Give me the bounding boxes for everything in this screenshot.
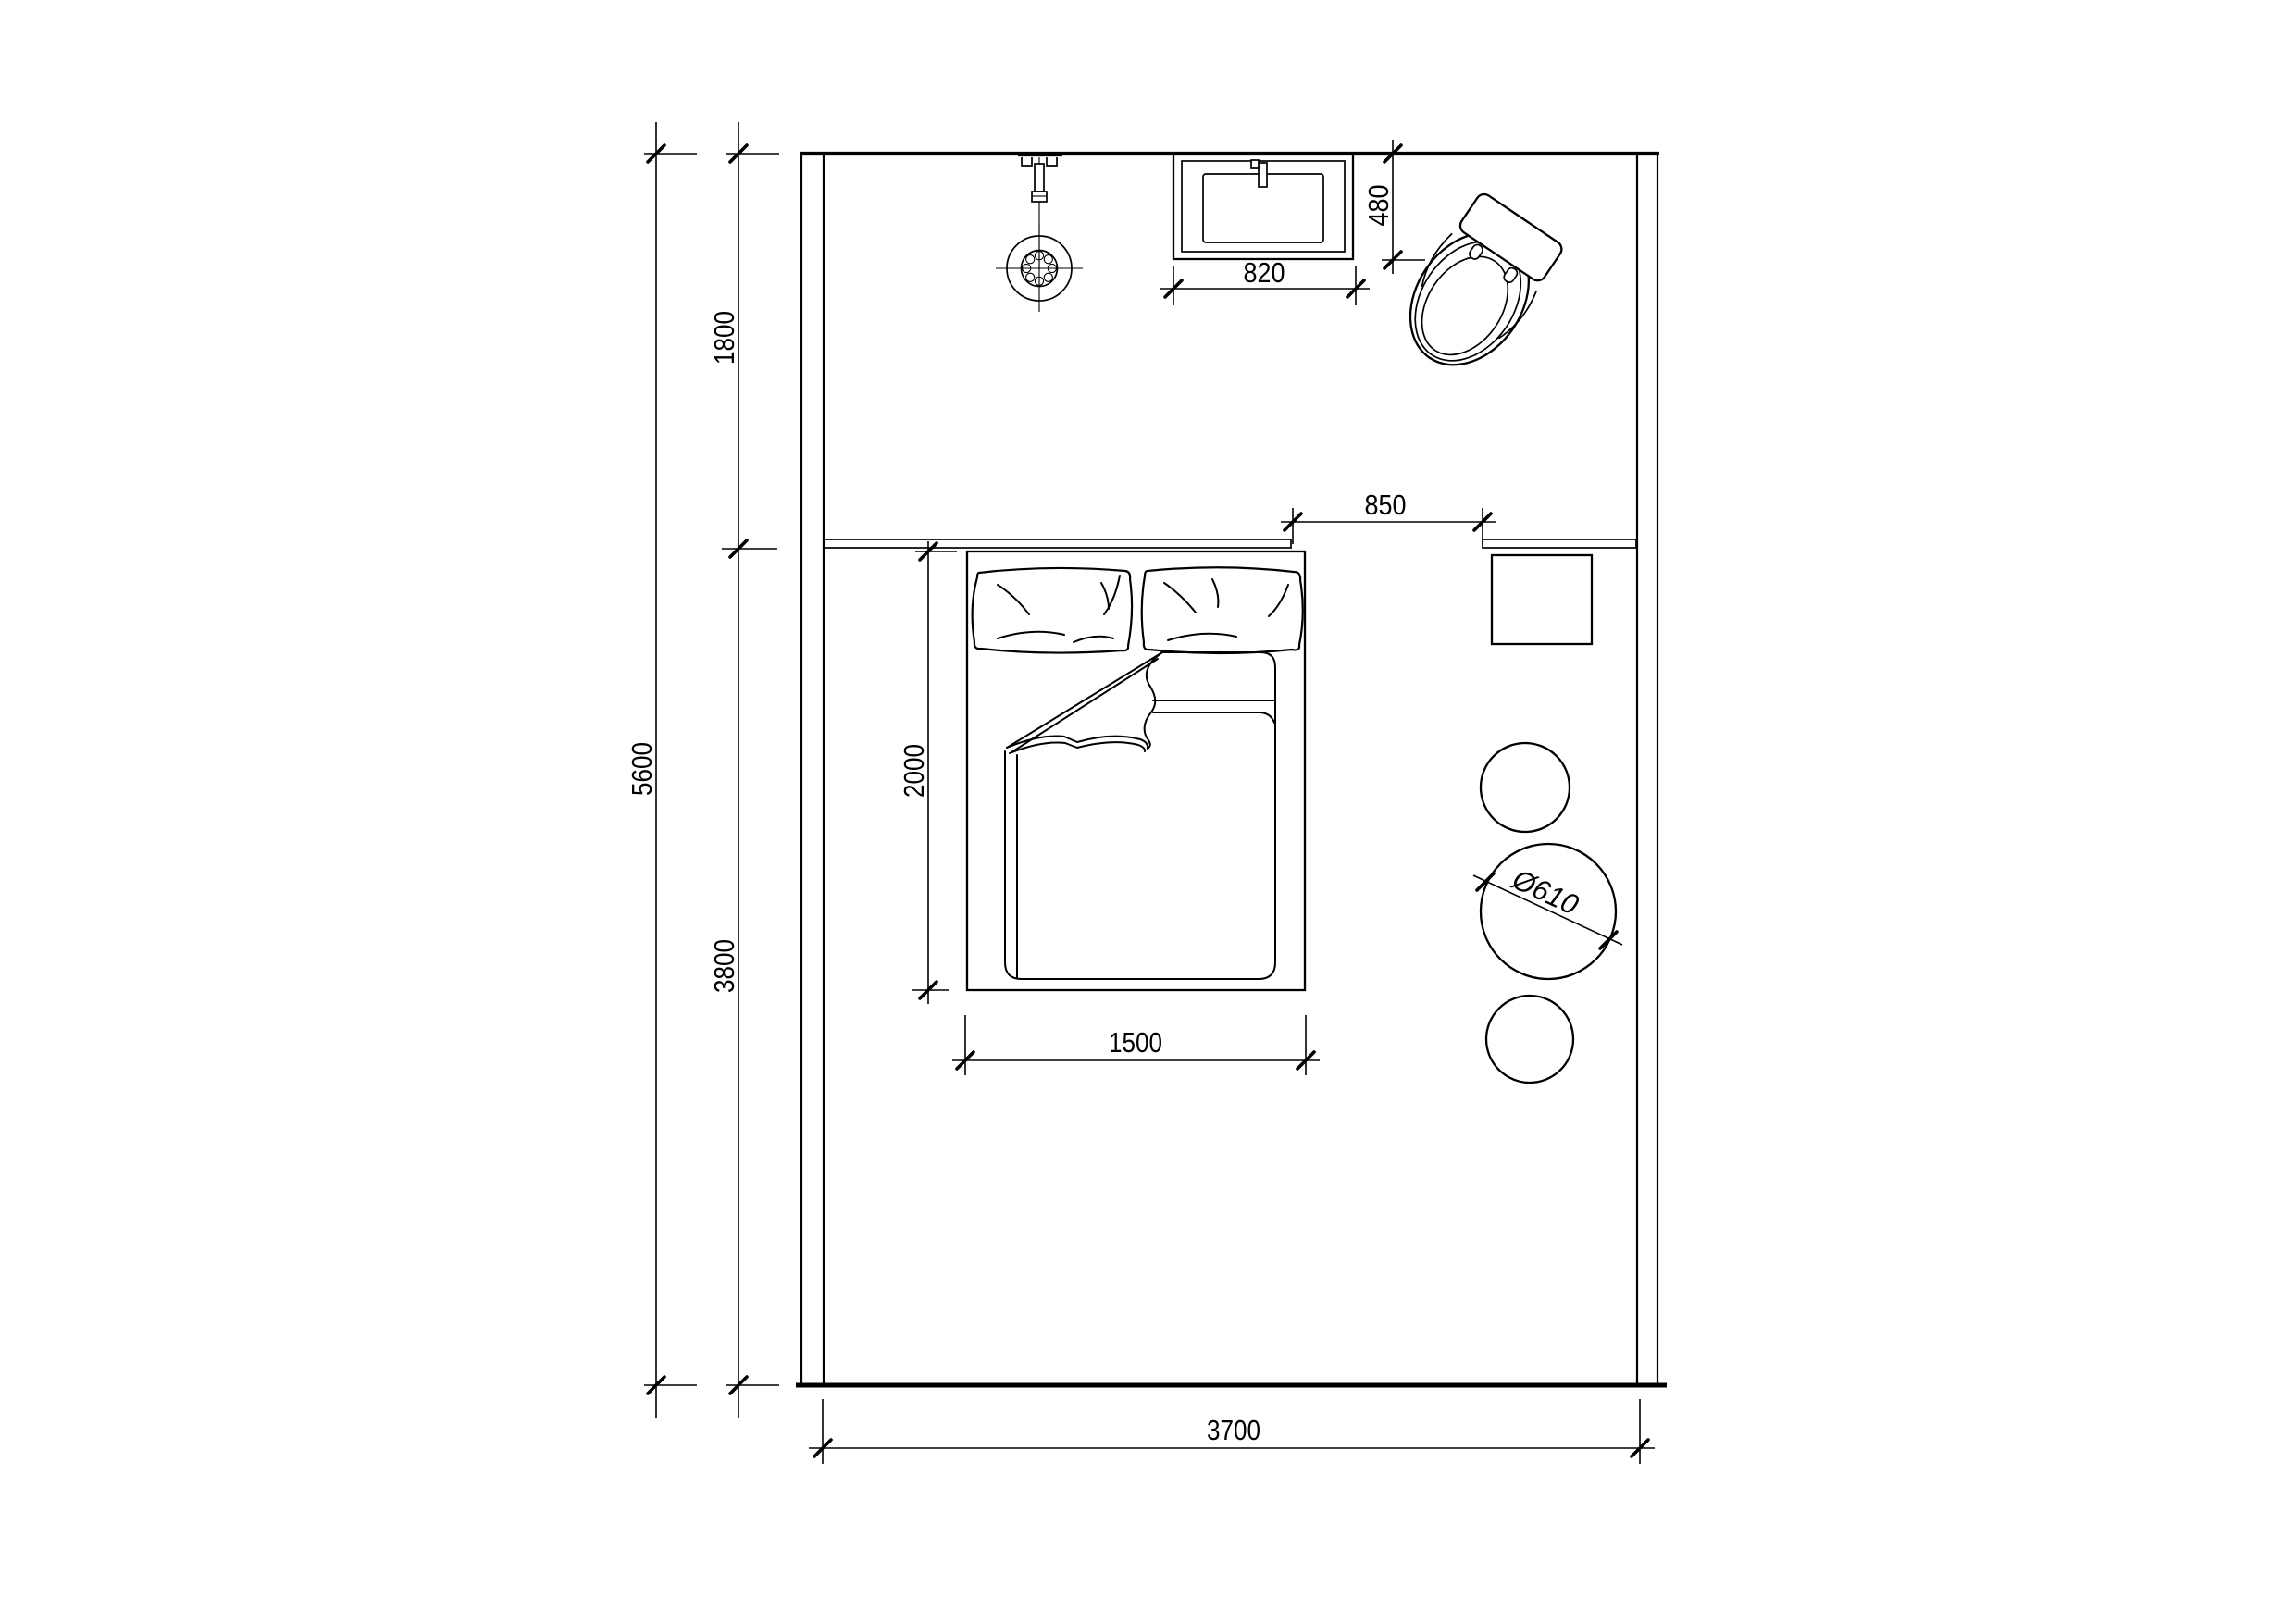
dim-label-820: 820 (1244, 256, 1285, 289)
dimension-counter-opening: 850 (1281, 489, 1496, 544)
dim-label-1800: 1800 (708, 311, 740, 365)
washbasin (1173, 154, 1353, 259)
floor-plan-canvas: 5600 1800 3800 3700 820 (0, 0, 2296, 1623)
headboard-ledge-left (824, 539, 1291, 548)
dimension-bed-length: 2000 (898, 541, 957, 1004)
headboard-ledge-right (1483, 539, 1636, 548)
duvet-fold-line (1007, 652, 1162, 748)
dimension-washbasin-width: 820 (1160, 256, 1370, 305)
dim-label-850: 850 (1365, 489, 1407, 521)
round-table (1481, 844, 1616, 979)
dimension-zone-split: 1800 3800 (708, 122, 779, 1418)
dimension-room-height: 5600 (626, 122, 697, 1418)
dim-label-2000: 2000 (898, 744, 930, 798)
faucet-icon (1259, 163, 1267, 187)
nightstand (1492, 555, 1592, 644)
dim-label-610: Ø610 (1507, 862, 1583, 921)
shower-bracket-icon (1022, 157, 1032, 166)
shower-head-icon (996, 225, 1083, 312)
dim-label-480: 480 (1362, 185, 1395, 227)
dim-label-3700: 3700 (1207, 1414, 1260, 1446)
stool-top (1481, 743, 1570, 832)
dimension-washbasin-depth: 480 (1362, 140, 1425, 274)
dim-label-1500: 1500 (1109, 1026, 1162, 1059)
toilet (1385, 189, 1568, 388)
dim-label-5600: 5600 (626, 742, 658, 796)
dimension-room-width: 3700 (809, 1399, 1655, 1464)
duvet (1005, 652, 1275, 979)
stool-bottom (1486, 996, 1573, 1083)
dimension-bed-width: 1500 (952, 1015, 1320, 1075)
pillow-left (973, 568, 1132, 653)
dim-label-3800: 3800 (708, 939, 740, 993)
shower-fixture (996, 155, 1083, 312)
pillow-right (1142, 567, 1303, 653)
floor-plan-page: 5600 1800 3800 3700 820 (0, 0, 2296, 1623)
bed (967, 551, 1305, 990)
dimension-table-diameter: Ø610 (1473, 862, 1622, 948)
